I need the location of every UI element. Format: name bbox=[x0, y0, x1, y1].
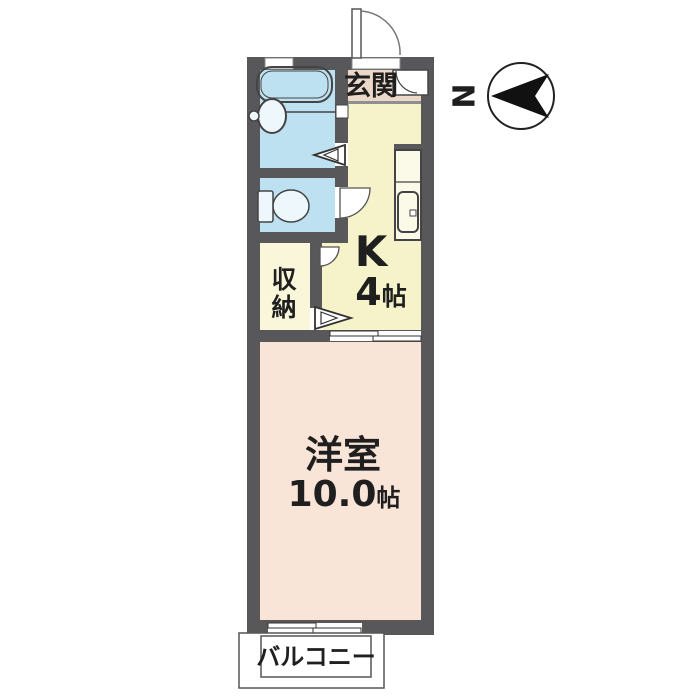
washbasin-faucet bbox=[249, 111, 259, 121]
genkan-label: 玄関 bbox=[344, 70, 398, 102]
balcony-label: バルコニー bbox=[256, 643, 376, 671]
entrance-door-leaf bbox=[352, 9, 361, 58]
sliding-door-panel-left bbox=[330, 331, 378, 336]
kitchen-size-value: 4 bbox=[355, 270, 381, 314]
sink-faucet bbox=[410, 210, 416, 216]
storage-label-char2: 納 bbox=[271, 293, 296, 322]
bath-wall-notch bbox=[336, 105, 348, 118]
kitchen-label: K bbox=[355, 227, 389, 276]
floor-plan-page: N 玄関 K 4帖 収納 洋室 10.0帖 バルコニー bbox=[0, 0, 700, 700]
storage-label-char1: 収 bbox=[271, 265, 297, 294]
washbasin bbox=[258, 99, 286, 133]
western-room-size-value: 10.0 bbox=[288, 474, 377, 515]
north-label: N bbox=[448, 83, 483, 108]
sliding-door-panel-right bbox=[373, 336, 421, 341]
toilet-tank bbox=[258, 191, 273, 222]
western-room-size-unit: 帖 bbox=[376, 484, 400, 512]
entrance-door-arc bbox=[361, 11, 400, 55]
storage-label: 収納 bbox=[271, 265, 297, 322]
western-room-label: 洋室 bbox=[305, 433, 381, 477]
kitchen-size-unit: 帖 bbox=[382, 282, 407, 311]
entrance-opening bbox=[352, 58, 400, 69]
floor-plan-svg: N 玄関 K 4帖 収納 洋室 10.0帖 バルコニー bbox=[0, 0, 700, 700]
balcony-window-panel-left bbox=[268, 623, 316, 628]
toilet-bowl bbox=[273, 190, 309, 222]
